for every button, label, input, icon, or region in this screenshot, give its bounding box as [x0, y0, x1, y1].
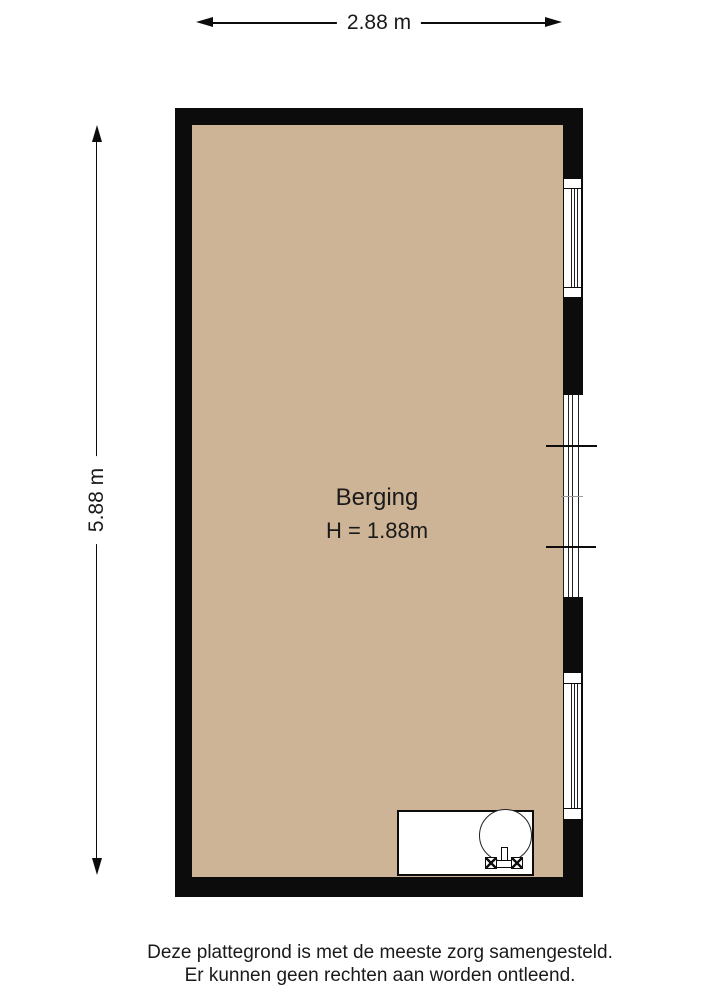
width-dimension: 2.88 m — [196, 12, 562, 34]
window-glass-line — [574, 684, 575, 808]
tap-handle-icon — [511, 857, 523, 869]
door-tick-mark — [561, 496, 583, 497]
tap-handle-icon — [485, 857, 497, 869]
disclaimer-line-1: Deze plattegrond is met de meeste zorg s… — [147, 941, 613, 964]
footer-disclaimer: Deze plattegrond is met de meeste zorg s… — [147, 941, 613, 987]
window-glass-line — [571, 684, 572, 808]
window-glass-line — [577, 189, 578, 287]
window-glass-line — [574, 189, 575, 287]
height-dimension-label: 5.88 m — [85, 456, 109, 544]
window-frame-cap — [564, 808, 581, 809]
window-glass-line — [571, 189, 572, 287]
window-frame-cap — [564, 683, 581, 684]
window-top-right — [563, 178, 582, 298]
window-frame-cap — [564, 188, 581, 189]
window-frame-cap — [564, 287, 581, 288]
disclaimer-line-2: Er kunnen geen rechten aan worden ontlee… — [147, 964, 613, 987]
arrow-down-icon — [92, 858, 102, 875]
window-bottom-right — [563, 672, 582, 820]
floorplan-canvas: 2.88 m 5.88 m Berging — [0, 0, 707, 999]
door-tick-mark — [546, 445, 597, 447]
room-name-label: Berging — [336, 484, 419, 512]
height-dimension: 5.88 m — [86, 125, 107, 875]
window-glass-line — [577, 684, 578, 808]
door-tick-mark — [546, 546, 596, 548]
room-height-label: H = 1.88m — [326, 518, 428, 544]
arrow-right-icon — [545, 17, 562, 27]
width-dimension-label: 2.88 m — [337, 11, 421, 35]
